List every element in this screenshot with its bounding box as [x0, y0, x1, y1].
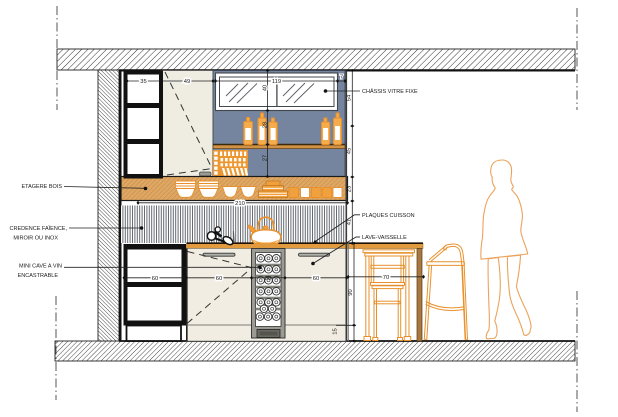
svg-text:30: 30 [265, 276, 271, 282]
svg-text:35: 35 [140, 79, 146, 85]
svg-text:210: 210 [235, 201, 245, 207]
svg-text:ENCASTRABLE: ENCASTRABLE [18, 273, 59, 279]
svg-text:70: 70 [383, 275, 389, 281]
svg-text:119: 119 [272, 79, 281, 85]
svg-text:27: 27 [263, 155, 269, 161]
svg-text:PLAQUES CUISSON: PLAQUES CUISSON [362, 213, 415, 219]
svg-text:60: 60 [216, 276, 222, 282]
svg-text:49: 49 [184, 79, 190, 85]
svg-text:15: 15 [333, 328, 339, 334]
svg-text:MINI CAVE A VIN: MINI CAVE A VIN [19, 264, 62, 270]
svg-text:23: 23 [347, 186, 353, 192]
svg-text:45: 45 [347, 148, 353, 154]
svg-text:MIROIR OU INOX: MIROIR OU INOX [13, 236, 58, 242]
svg-text:60: 60 [313, 276, 319, 282]
svg-text:ETAGERE BOIS: ETAGERE BOIS [21, 184, 62, 190]
svg-text:60: 60 [152, 276, 158, 282]
svg-text:CREDENCE FAÏENCE,: CREDENCE FAÏENCE, [10, 225, 68, 232]
svg-text:7: 7 [340, 75, 343, 81]
svg-text:40: 40 [263, 85, 269, 91]
svg-text:28: 28 [263, 122, 269, 128]
svg-text:CHÂSSIS VITRE FIXE: CHÂSSIS VITRE FIXE [362, 88, 418, 95]
svg-text:54: 54 [347, 94, 353, 101]
svg-text:90: 90 [348, 289, 354, 295]
svg-text:LAVE-VAISSELLE: LAVE-VAISSELLE [362, 235, 407, 241]
